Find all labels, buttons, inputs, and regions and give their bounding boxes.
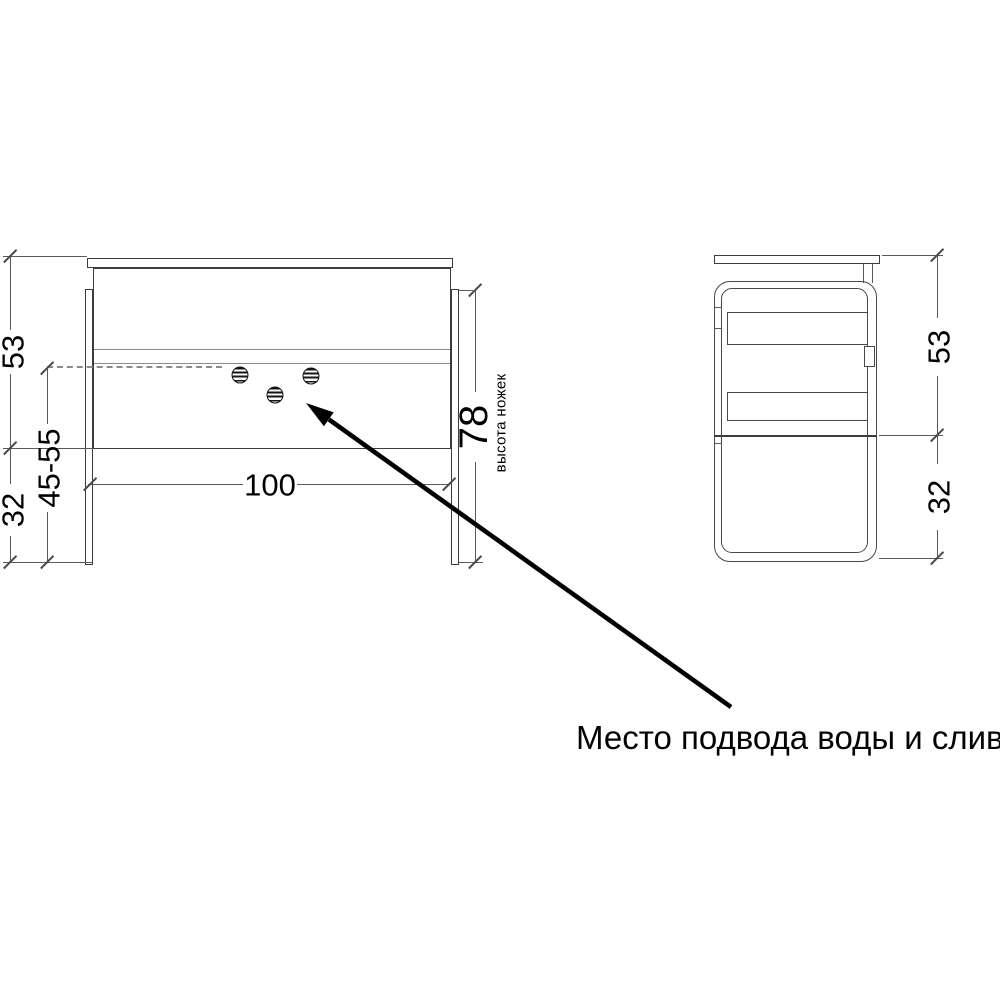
water-hole-center	[267, 387, 284, 404]
water-hole-left	[232, 367, 249, 384]
tube-joint-mark	[714, 328, 722, 329]
side-bracket-tab	[864, 346, 875, 367]
annotation-label: Место подвода воды и слив	[576, 721, 1000, 754]
dimension-line-53-32	[10, 374, 11, 484]
dim-label-front-bottom-height: 32	[0, 493, 29, 527]
front-apron-line-upper	[94, 349, 450, 350]
side-tabletop	[714, 255, 880, 264]
dimension-line-45-55	[47, 512, 48, 562]
dim-label-adjustable-height: 45-55	[34, 428, 65, 507]
front-body	[93, 268, 451, 449]
side-divider-line	[714, 435, 877, 437]
front-tabletop	[87, 258, 453, 268]
dimension-line-side-53-32	[937, 376, 938, 464]
front-apron-line-lower	[94, 363, 450, 364]
side-back-rail	[872, 263, 873, 283]
dimension-line-78	[475, 290, 476, 392]
tube-joint-mark	[714, 307, 722, 308]
dimension-line-53-32	[10, 256, 11, 330]
side-upper-panel	[727, 312, 868, 345]
dim-label-side-top-height: 53	[924, 330, 955, 364]
dimension-line-100	[297, 484, 450, 485]
dim-label-width: 100	[244, 470, 296, 501]
side-lower-panel	[727, 392, 868, 421]
tube-joint-mark	[714, 443, 722, 444]
dim-label-leg-height: 78	[454, 405, 494, 450]
dim-label-front-top-height: 53	[0, 335, 29, 369]
side-back-rail	[863, 263, 864, 283]
leg-height-caption: высота ножек	[494, 374, 509, 473]
water-level-dashed-line	[47, 366, 222, 368]
dimension-line-45-55	[47, 368, 48, 424]
dimension-line-100	[88, 484, 243, 485]
front-left-leg	[85, 289, 93, 565]
drawing-canvas: 53 32 45-55 100 78 высота ножек 53 32	[0, 0, 1000, 1000]
dimension-line-78	[475, 462, 476, 562]
dim-label-side-bottom-height: 32	[924, 480, 955, 514]
dimension-line-side-53-32	[937, 255, 938, 318]
extension-line	[3, 256, 87, 257]
water-hole-right	[303, 368, 320, 385]
